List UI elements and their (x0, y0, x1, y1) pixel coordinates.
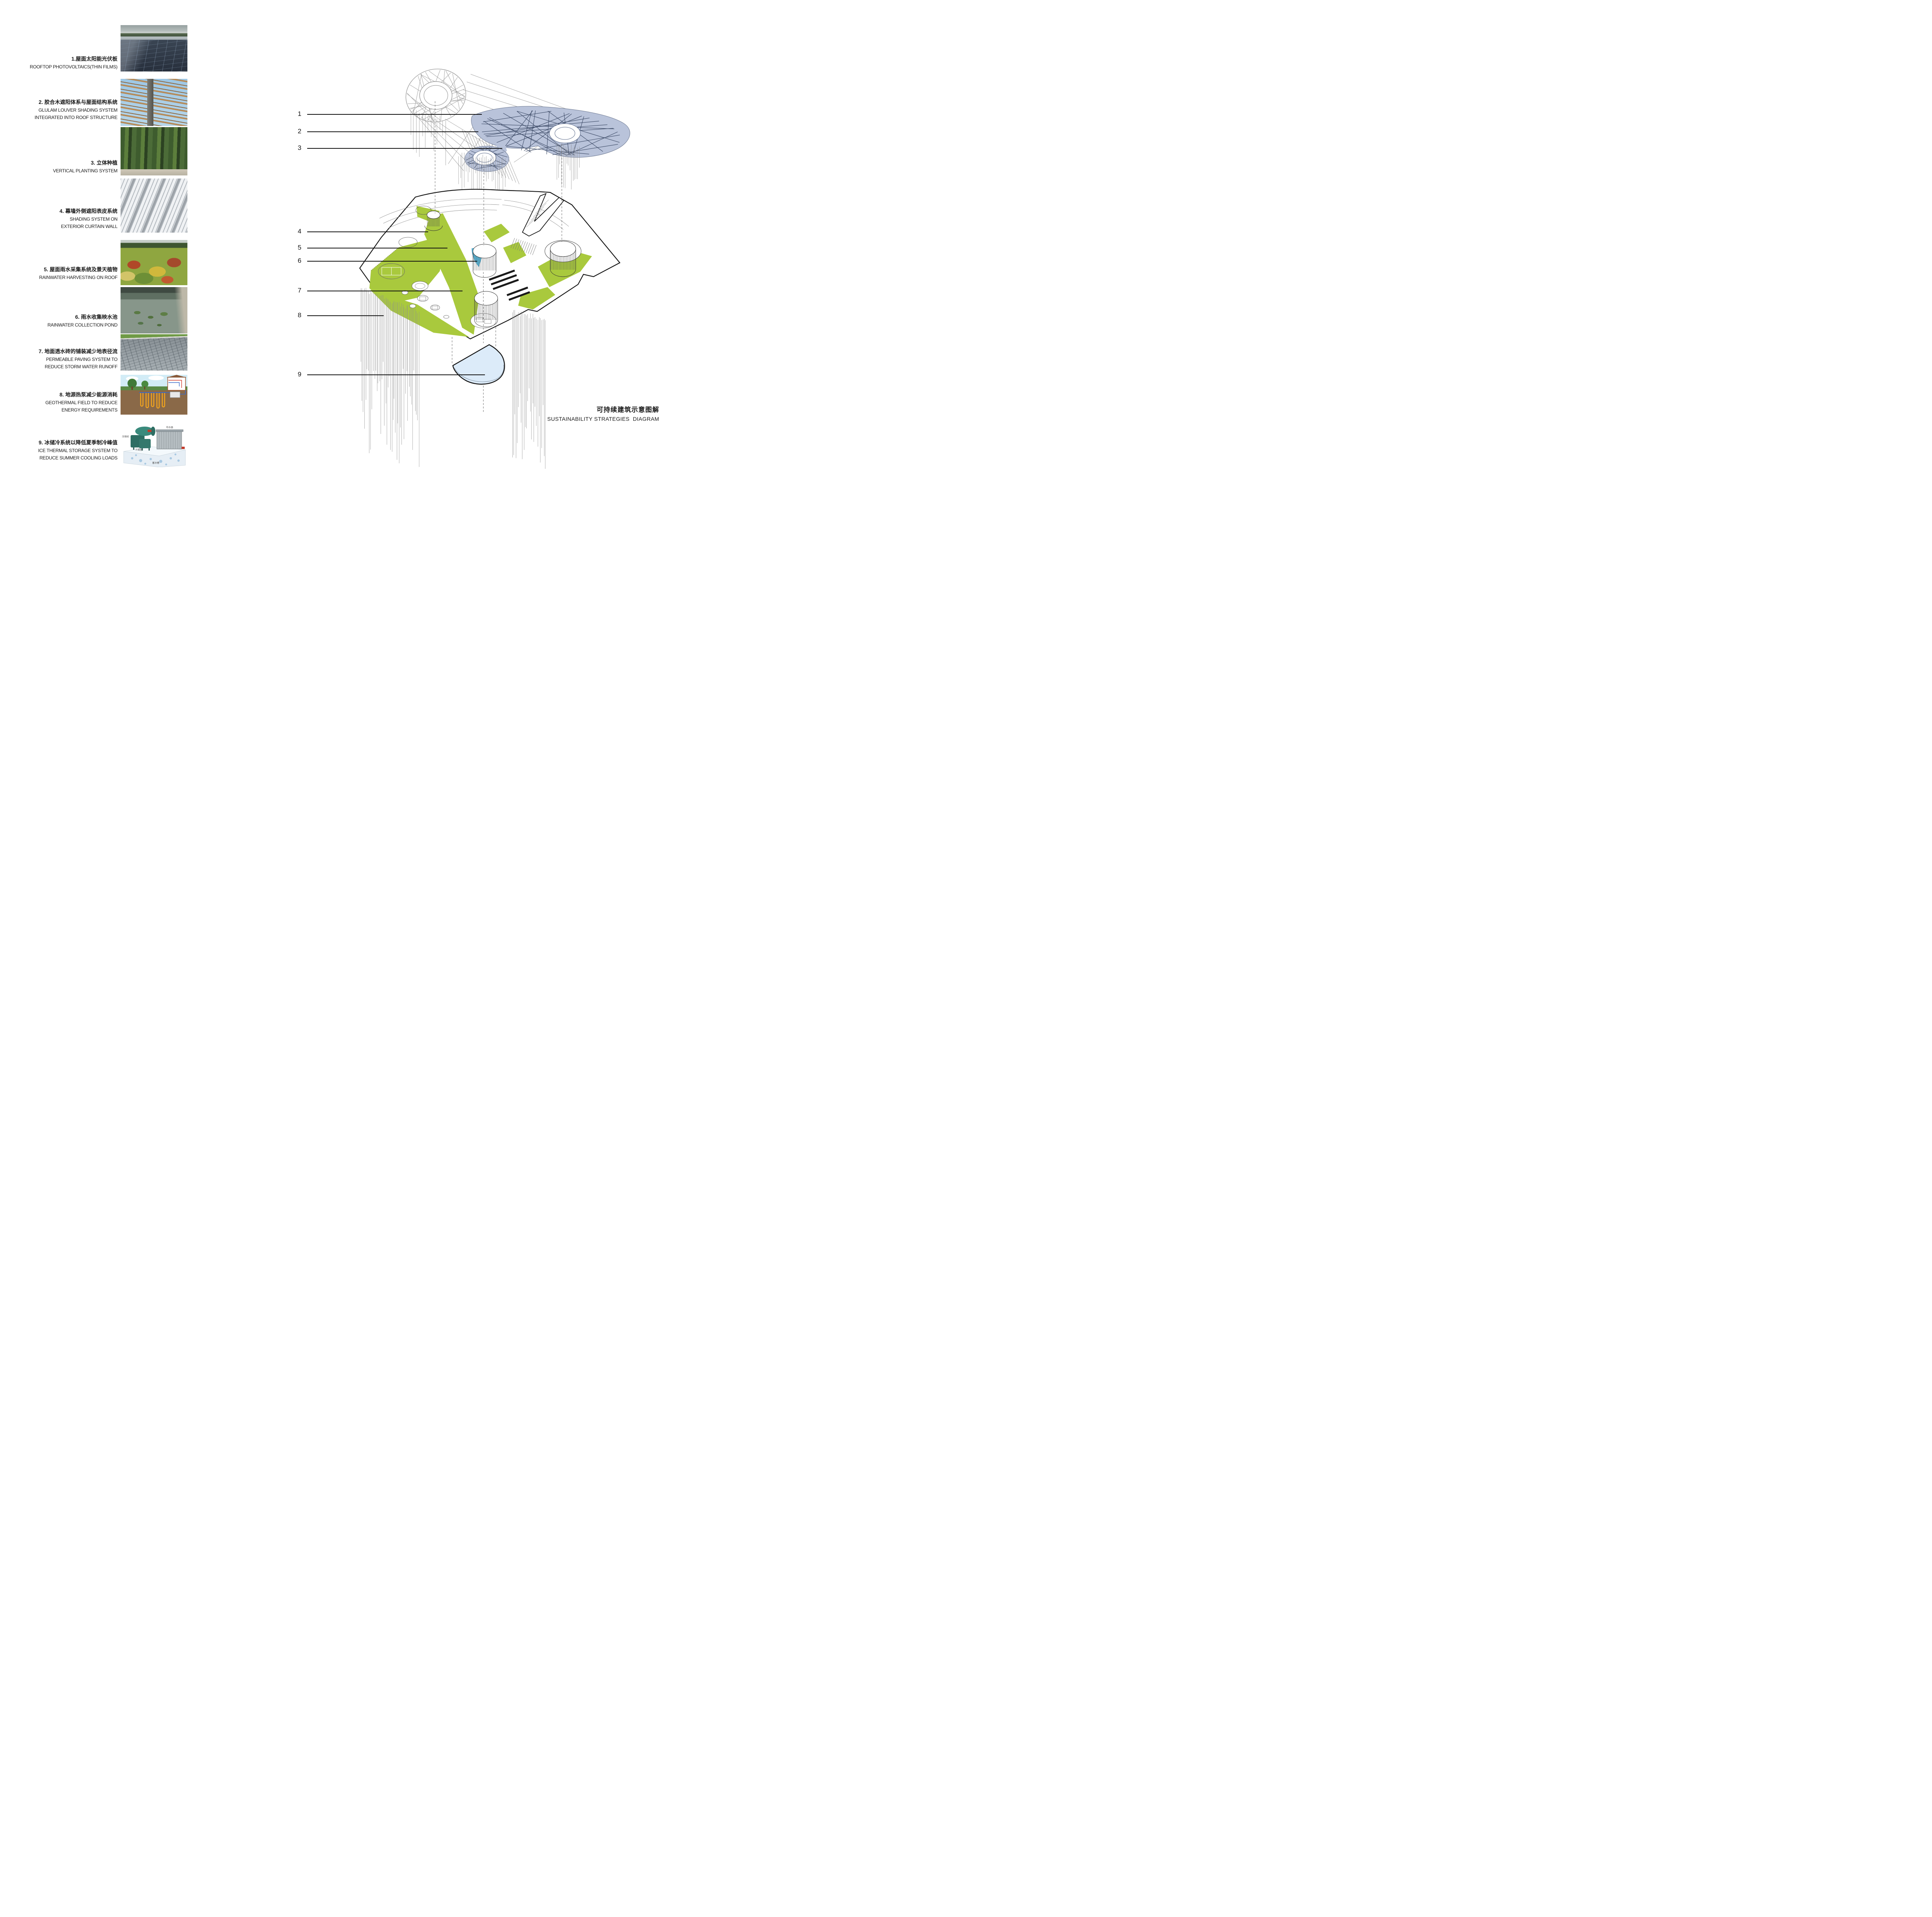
canopy-oculus-lower (473, 150, 496, 165)
canopy-oculus-right (549, 124, 580, 143)
leader-line-1 (307, 114, 482, 115)
site-plan-level (360, 189, 620, 339)
wireframe-oculus (420, 82, 452, 109)
rainwater-pond-level (453, 345, 505, 384)
sustainability-axonometric-diagram (0, 0, 678, 479)
leader-line-3 (307, 148, 502, 149)
leader-line-9 (307, 374, 485, 375)
leader-line-2 (307, 131, 478, 132)
geothermal-borehole-strands-right (512, 310, 545, 469)
presentation-board: 1.屋面太阳能光伏板 ROOFTOP PHOTOVOLTAICS(THIN FI… (0, 0, 678, 479)
leader-line-6 (307, 261, 477, 262)
leader-line-8 (307, 315, 384, 316)
collection-pond-slab (453, 345, 505, 384)
leader-line-7 (307, 291, 463, 291)
leader-line-4 (307, 231, 428, 232)
leader-line-5 (307, 248, 447, 248)
geothermal-borehole-strands-left (361, 288, 419, 467)
